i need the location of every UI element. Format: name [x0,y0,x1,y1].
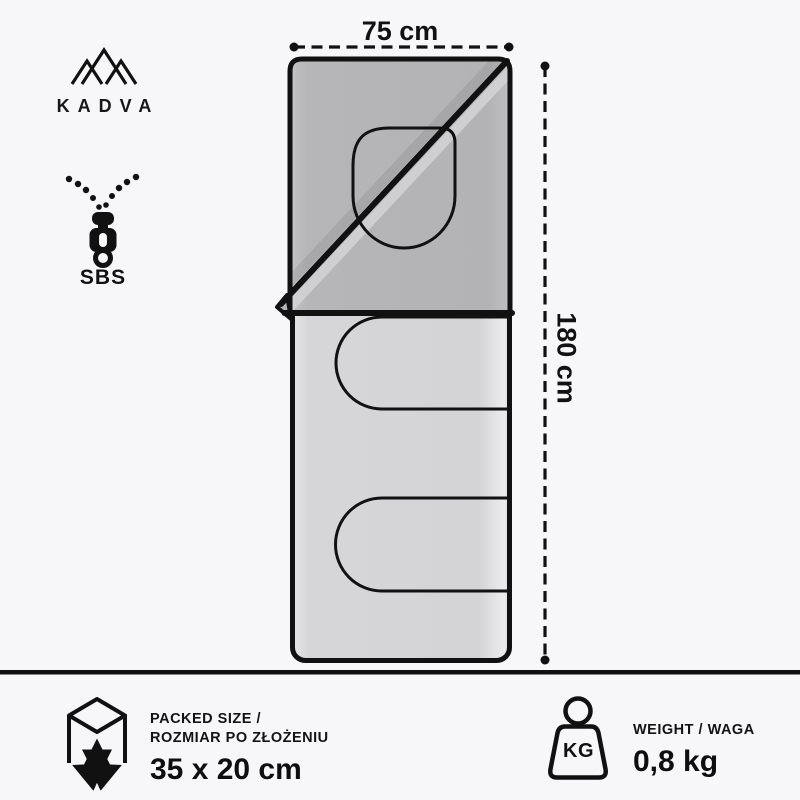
weight-title: WEIGHT / WAGA [633,721,793,740]
bag-top-flap [277,54,514,319]
packed-size-title-line2: ROZMIAR PO ZŁOŻENIU [150,729,410,748]
weight-kettlebell-icon [550,699,605,778]
height-dimension-line [541,62,550,665]
zipper-teeth-dots [66,174,139,210]
zipper-slider [90,212,117,266]
packed-size-spec: PACKED SIZE / ROZMIAR PO ZŁOŻENIU 35 x 2… [150,710,410,787]
height-dimension-label: 180 cm [551,312,582,404]
zipper-icon [66,174,139,266]
kg-icon-label: KG [560,740,597,763]
packed-size-cube-icon [69,699,125,776]
scene-graphics [0,0,800,800]
weight-spec: WEIGHT / WAGA 0,8 kg [633,721,793,779]
width-dimension-label: 75 cm [319,16,481,47]
sleeping-bag-illustration [277,54,514,661]
product-infographic: KADVA SBS 75 cm 180 cm PACKED SIZE / ROZ… [0,0,800,800]
packed-size-value: 35 x 20 cm [150,753,410,787]
zipper-brand-label: SBS [43,266,163,290]
footer-divider [0,670,800,675]
brand-name: KADVA [24,96,184,117]
packed-size-title-line1: PACKED SIZE / [150,710,410,729]
kadva-mountains-icon [72,50,136,84]
weight-value: 0,8 kg [633,745,793,779]
